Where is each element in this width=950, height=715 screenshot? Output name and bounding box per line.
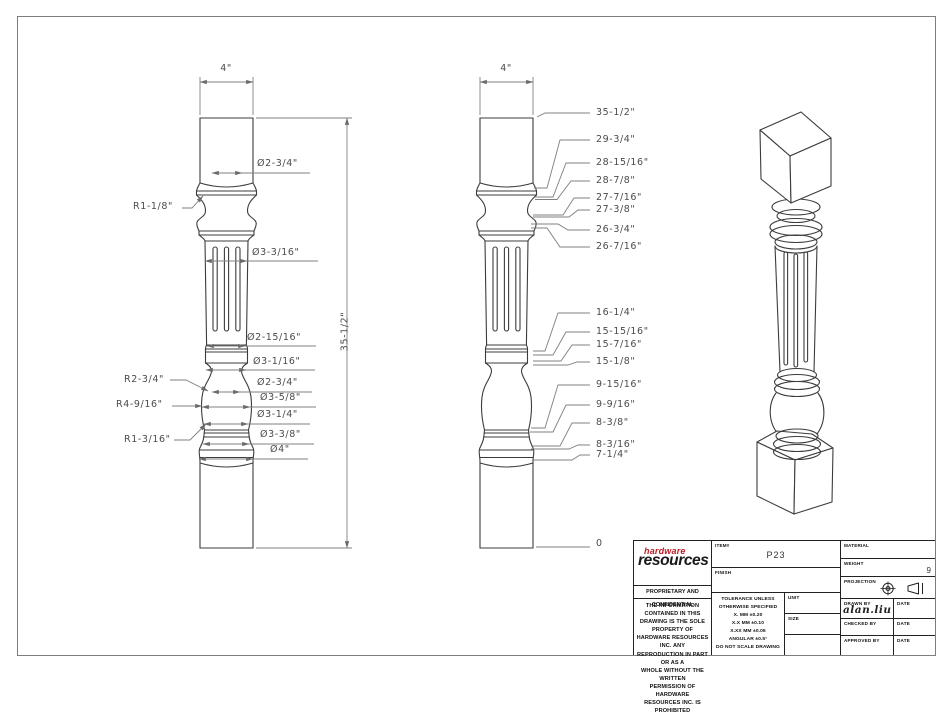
checked-by-label: CHECKED BY: [841, 619, 893, 626]
dim-label-dia-neck-top: Ø2-3/4": [257, 158, 298, 169]
title-block-left-column: hardware resources PROPRIETARY AND CONFI…: [634, 541, 712, 655]
proprietary-line: REPRODUCTION IN PART OR AS A: [634, 651, 711, 667]
date-label: DATE: [894, 619, 935, 626]
proprietary-line: WHOLE WITHOUT THE WRITTEN: [634, 667, 711, 683]
proprietary-title: PROPRIETARY AND CONFIDENTIAL: [634, 586, 711, 599]
callout-label: 29-3/4": [596, 134, 635, 145]
front-view-dimensions: [170, 77, 352, 548]
dim-label-r-vase: R4-9/16": [116, 399, 163, 410]
tolerance-line: DO NOT SCALE DRAWING: [712, 644, 784, 652]
dim-label-dia-vase-top: Ø2-3/4": [257, 377, 298, 388]
callout-label: 35-1/2": [596, 107, 635, 118]
projection-cell: PROJECTION: [841, 577, 935, 599]
callout-label: 7-1/4": [596, 449, 629, 460]
dim-label-r-vase-top: R2-3/4": [124, 374, 164, 385]
callout-label: 27-7/16": [596, 192, 642, 203]
proprietary-line: DRAWING IS THE SOLE PROPERTY OF: [634, 618, 711, 634]
tolerance-line: TOLERANCE UNLESS: [712, 596, 784, 604]
dim-label-r-neck: R1-1/8": [133, 201, 173, 212]
dim-label-front-height: 35-1/2": [340, 307, 351, 357]
callout-label: 28-15/16": [596, 157, 649, 168]
approved-by-label: APPROVED BY: [841, 636, 893, 643]
dim-label-profile-width: 4": [486, 63, 526, 74]
callout-label: 28-7/8": [596, 175, 635, 186]
callout-label: 27-3/8": [596, 204, 635, 215]
dim-label-dia-vase-max: Ø3-5/8": [260, 392, 301, 403]
company-logo: hardware resources: [634, 541, 711, 586]
callout-label-zero: 0: [596, 538, 603, 549]
callout-label: 26-3/4": [596, 224, 635, 235]
callout-label: 26-7/16": [596, 241, 642, 252]
dim-label-front-width: 4": [206, 63, 246, 74]
unit-label: UNIT: [785, 593, 840, 600]
size-cell: SIZE: [785, 614, 840, 635]
callout-label: 9-9/16": [596, 399, 635, 410]
drawn-by-signature: alan.liu: [843, 604, 892, 616]
material-label: MATERIAL: [841, 541, 935, 548]
dim-label-dia-flute: Ø3-3/16": [252, 247, 299, 258]
title-block-middle-column: ITEM# P23 FINISH TOLERANCE UNLESS OTHERW…: [712, 541, 841, 655]
weight-cell: WEIGHT 9: [841, 559, 935, 577]
empty-cell: [785, 635, 840, 655]
logo-resources-text: resources: [638, 554, 711, 568]
isometric-view: [757, 112, 833, 514]
finish-label: FINISH: [712, 568, 840, 575]
profile-view: [477, 77, 591, 548]
weight-label: WEIGHT: [841, 559, 935, 566]
proprietary-line: HARDWARE RESOURCES INC. ANY: [634, 634, 711, 650]
tolerance-line: ANGULAR ±0.5°: [712, 636, 784, 644]
proprietary-text: THE INFORMATION CONTAINED IN THIS DRAWIN…: [634, 599, 711, 715]
weight-value: 9: [927, 566, 931, 575]
front-view: [170, 77, 352, 548]
dim-label-dia-shaft-bottom: Ø2-15/16": [247, 332, 301, 343]
item-cell: ITEM# P23: [712, 541, 840, 568]
checked-by-row: CHECKED BY DATE: [841, 619, 935, 636]
dim-label-dia-ring: Ø3-3/8": [260, 429, 301, 440]
proprietary-line: RESOURCES INC. IS PROHIBITED: [634, 699, 711, 715]
proprietary-line: THE INFORMATION CONTAINED IN THIS: [634, 602, 711, 618]
callout-label: 9-15/16": [596, 379, 642, 390]
size-label: SIZE: [785, 614, 840, 621]
approved-by-row: APPROVED BY DATE: [841, 636, 935, 655]
drawing-sheet: 4" 35-1/2" Ø2-3/4" R1-1/8" Ø3-3/16" Ø2-1…: [0, 0, 950, 671]
third-angle-projection-icon: [880, 581, 896, 596]
title-block: hardware resources PROPRIETARY AND CONFI…: [633, 540, 935, 655]
callout-label: 15-7/16": [596, 339, 642, 350]
callout-label: 15-15/16": [596, 326, 649, 337]
dim-label-dia-flare: Ø4": [270, 444, 290, 455]
dim-label-dia-bead: Ø3-1/16": [253, 356, 300, 367]
callout-label: 16-1/4": [596, 307, 635, 318]
finish-cell: FINISH: [712, 568, 840, 593]
tolerance-block: TOLERANCE UNLESS OTHERWISE SPECIFIED X. …: [712, 593, 785, 655]
title-block-right-column: MATERIAL WEIGHT 9 PROJECTION: [841, 541, 935, 655]
dim-label-dia-vase-bottom: Ø3-1/4": [257, 409, 298, 420]
drawn-by-row: DRAWN BY alan.liu DATE: [841, 599, 935, 619]
callout-label: 8-3/8": [596, 417, 629, 428]
tolerance-line: X. MM ±0.20: [712, 612, 784, 620]
date-label: DATE: [894, 636, 935, 643]
item-number: P23: [712, 550, 840, 560]
proprietary-line: PERMISSION OF HARDWARE: [634, 683, 711, 699]
date-label: DATE: [894, 599, 935, 606]
material-cell: MATERIAL: [841, 541, 935, 559]
dim-label-r-base-cove: R1-3/16": [124, 434, 171, 445]
profile-view-leaders: [480, 77, 590, 547]
tolerance-line: OTHERWISE SPECIFIED: [712, 604, 784, 612]
projection-cone-icon: [906, 582, 925, 595]
unit-cell: UNIT: [785, 593, 840, 614]
tolerance-line: X.XX MM ±0.05: [712, 628, 784, 636]
item-label: ITEM#: [712, 541, 840, 548]
callout-label: 15-1/8": [596, 356, 635, 367]
tolerance-line: X.X MM ±0.10: [712, 620, 784, 628]
